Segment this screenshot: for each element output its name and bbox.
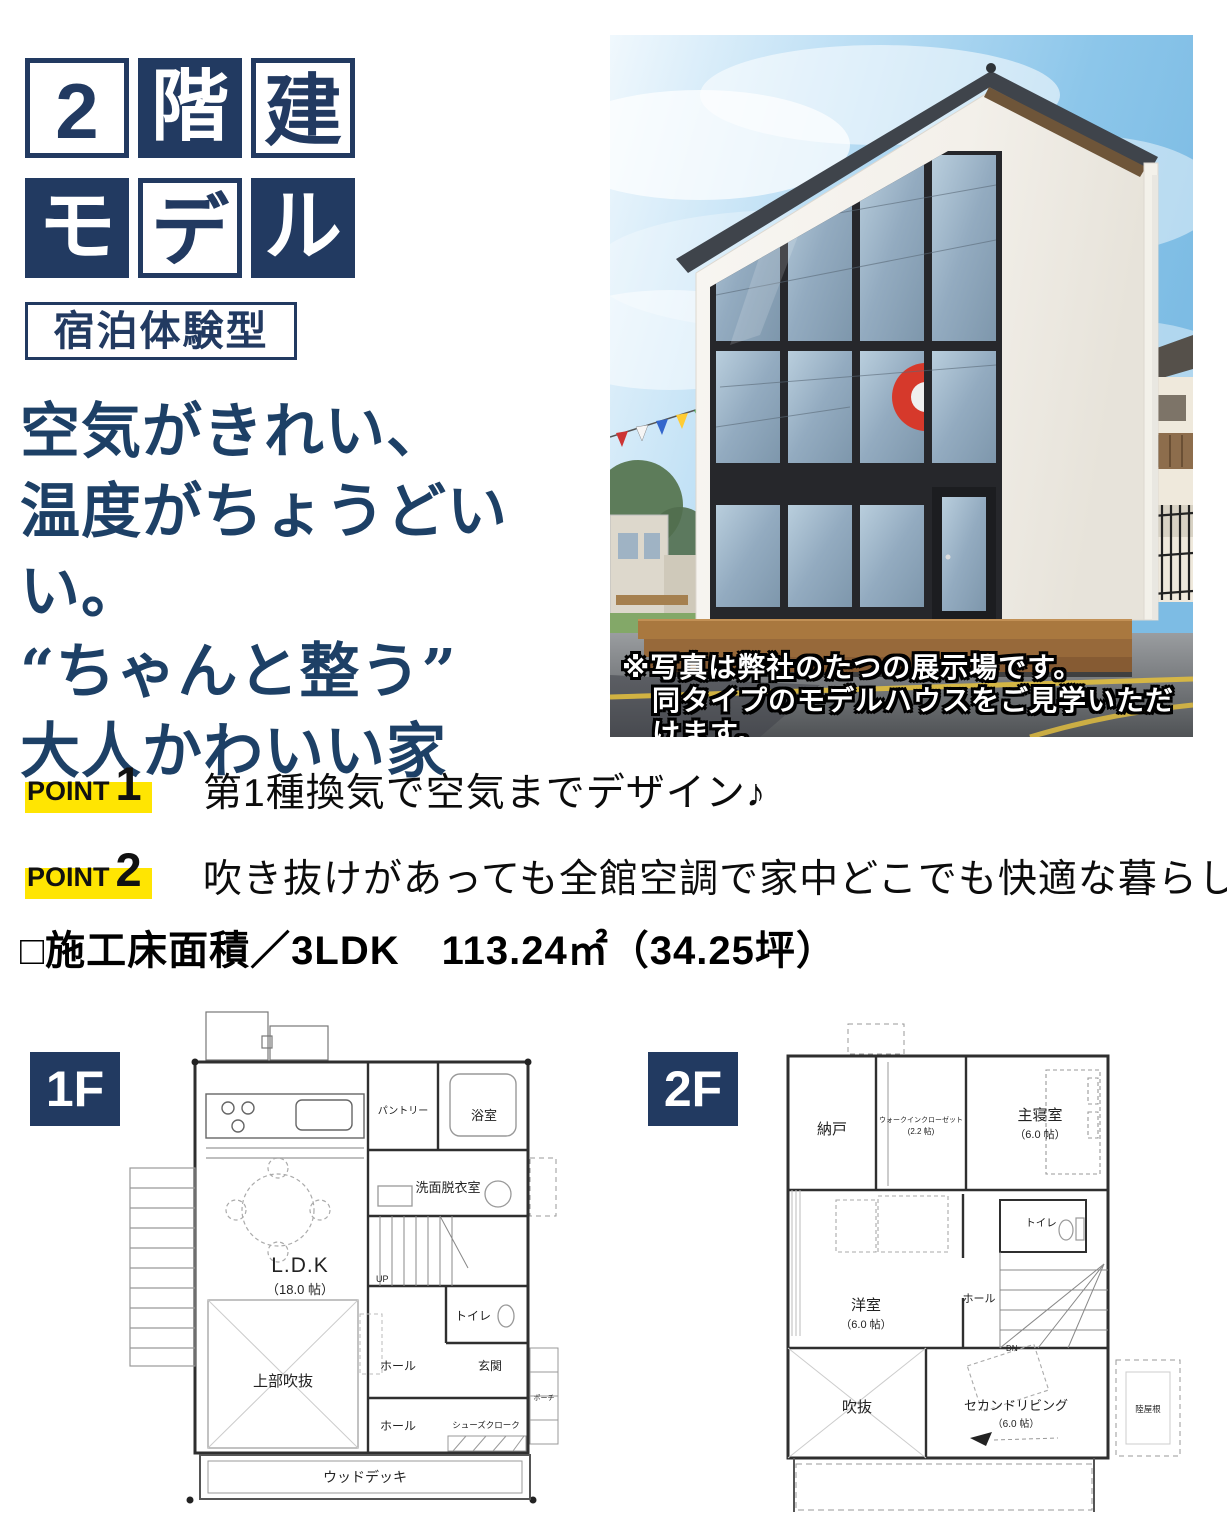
room-label-second-living-size: （6.0 帖） (993, 1417, 1040, 1430)
floor-area-label: □施工床面積／3LDK (20, 929, 400, 973)
photo-caption-line2: 同タイプのモデルハウスをご見学いただけます。 (622, 684, 1193, 737)
floor-area-value: 113.24㎡（34.25坪） (442, 929, 837, 973)
room-label-second-living: セカンドリビング (964, 1398, 1068, 1413)
bench (616, 595, 688, 605)
floor-tag-2f: 2F (648, 1052, 738, 1126)
title-char-box: モ (25, 178, 129, 278)
point-2-label: POINT2 (25, 842, 152, 899)
room-label-wic: ウォークインクローゼット (879, 1115, 963, 1124)
exterior-stairs (130, 1168, 195, 1366)
room-label-storage: 納戸 (817, 1121, 847, 1138)
room-label-bath: 浴室 (471, 1108, 497, 1123)
floorplan-1f: パントリー 浴室 洗面脱衣室 UP トイレ ホール 玄関 ホール シューズクロー… (128, 998, 560, 1536)
room-label-master: 主寝室 (1017, 1106, 1062, 1124)
room-label-entrance: 玄関 (478, 1358, 502, 1373)
room-label-toilet-2f: トイレ (1025, 1217, 1057, 1229)
title-char-box: 2 (25, 58, 129, 158)
label-up: UP (376, 1274, 389, 1284)
point-1-text: 第1種換気で空気までデザイン♪ (203, 762, 766, 818)
roof-finial (986, 63, 996, 73)
photo-caption: ※写真は弊社のたつの展示場です。 同タイプのモデルハウスをご見学いただけます。 (622, 651, 1193, 737)
point-number: 1 (116, 757, 142, 810)
room-label-void-2f: 吹抜 (842, 1399, 872, 1416)
room-label-ldk-size: （18.0 帖） (266, 1282, 334, 1297)
room-label-wic-size: (2.2 帖) (908, 1126, 935, 1136)
model-house-photo: ※写真は弊社のたつの展示場です。 同タイプのモデルハウスをご見学いただけます。 (610, 35, 1193, 737)
title-char-box: デ (138, 178, 242, 278)
headline: 空気がきれい、 温度がちょうどいい。 “ちゃんと整う” 大人かわいい家 (20, 392, 610, 792)
flyer-page: 2 階 建 モ デ ル 宿泊体験型 空気がきれい、 温度がちょうどいい。 “ちゃ… (0, 0, 1227, 1536)
headline-line: “ちゃんと整う” (20, 632, 610, 712)
house-photo-art (610, 35, 1193, 737)
room-label-western-size: （6.0 帖） (840, 1318, 891, 1331)
title-char-box: 建 (251, 58, 355, 158)
point-2-text: 吹き抜けがあっても全館空調で家中どこでも快適な暮らし (203, 848, 1227, 904)
room-label-deck: ウッドデッキ (323, 1469, 407, 1485)
room-label-hall-lower: ホール (380, 1419, 416, 1433)
floorplan-2f: 納戸 ウォークインクローゼット (2.2 帖) 主寝室 （6.0 帖） トイレ … (748, 1008, 1188, 1536)
photo-caption-line1: ※写真は弊社のたつの展示場です。 (622, 651, 1193, 684)
point-number: 2 (116, 843, 142, 896)
room-label-washroom: 洗面脱衣室 (415, 1180, 480, 1195)
room-label-toilet-1f: トイレ (455, 1309, 491, 1323)
room-label-hall-2f: ホール (963, 1292, 996, 1305)
room-label-hall-upper: ホール (380, 1359, 416, 1373)
room-label-pantry: パントリー (378, 1105, 429, 1117)
headline-line: 温度がちょうどいい。 (20, 472, 610, 632)
room-label-shoes: シューズクローク (452, 1420, 520, 1430)
point-2-row: POINT2 吹き抜けがあっても全館空調で家中どこでも快適な暮らし (25, 842, 1205, 902)
room-label-porch: ポーチ (534, 1394, 555, 1402)
title-char-box: 階 (138, 58, 242, 158)
point-1-label: POINT1 (25, 756, 152, 813)
balcony (794, 1458, 1094, 1512)
room-label-void-1f: 上部吹抜 (253, 1373, 313, 1390)
room-label-master-size: （6.0 帖） (1014, 1128, 1065, 1141)
room-label-western: 洋室 (851, 1297, 881, 1314)
stay-experience-badge: 宿泊体験型 (25, 302, 297, 360)
point-1-row: POINT1 第1種換気で空気までデザイン♪ (25, 756, 1205, 816)
label-dn: DN (1006, 1344, 1018, 1353)
point-word: POINT (27, 862, 110, 892)
floor-tag-1f: 1F (30, 1052, 120, 1126)
headline-line: 空気がきれい、 (20, 392, 610, 472)
point-word: POINT (27, 776, 110, 806)
room-label-ldk: L.D.K (271, 1254, 329, 1277)
title-char-box: ル (251, 178, 355, 278)
floor-area-line: □施工床面積／3LDK113.24㎡（34.25坪） (20, 918, 837, 976)
room-label-flat-roof: 陸屋根 (1135, 1404, 1161, 1414)
